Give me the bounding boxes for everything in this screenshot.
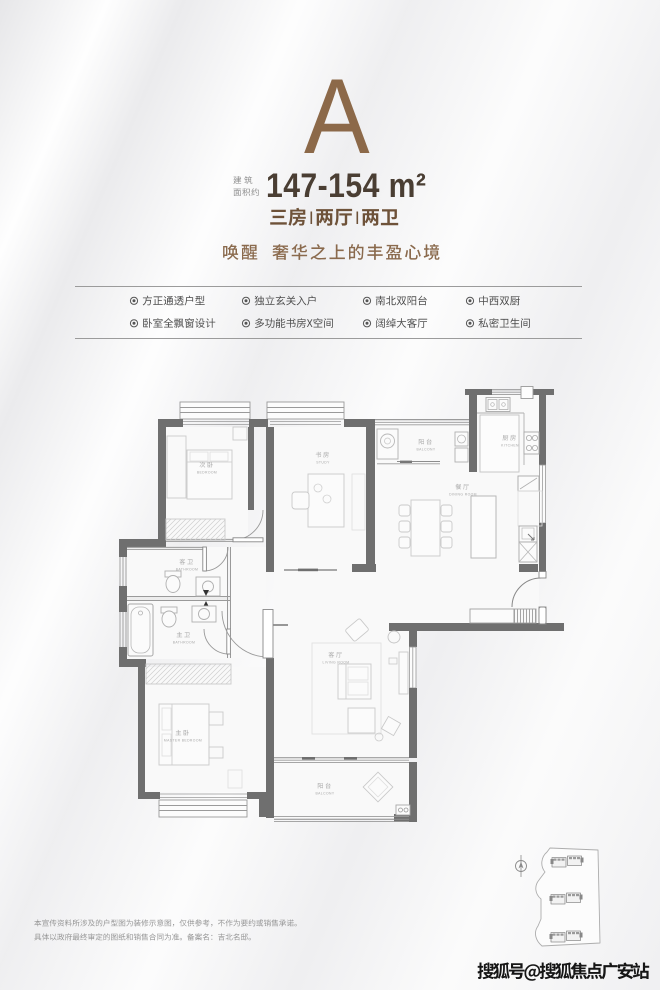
svg-text:STUDY: STUDY	[316, 461, 330, 465]
svg-text:BATHROOM: BATHROOM	[176, 568, 199, 572]
svg-text:BEDROOM: BEDROOM	[197, 471, 217, 475]
svg-text:DINING ROOM: DINING ROOM	[449, 493, 477, 497]
svg-text:BALCONY: BALCONY	[416, 448, 435, 452]
svg-text:KITCHEN: KITCHEN	[501, 444, 519, 448]
svg-text:BALCONY: BALCONY	[315, 792, 334, 796]
svg-text:LIVING ROOM: LIVING ROOM	[322, 661, 349, 665]
svg-text:MASTER BEDROOM: MASTER BEDROOM	[164, 739, 202, 743]
svg-text:BATHROOM: BATHROOM	[173, 641, 196, 645]
